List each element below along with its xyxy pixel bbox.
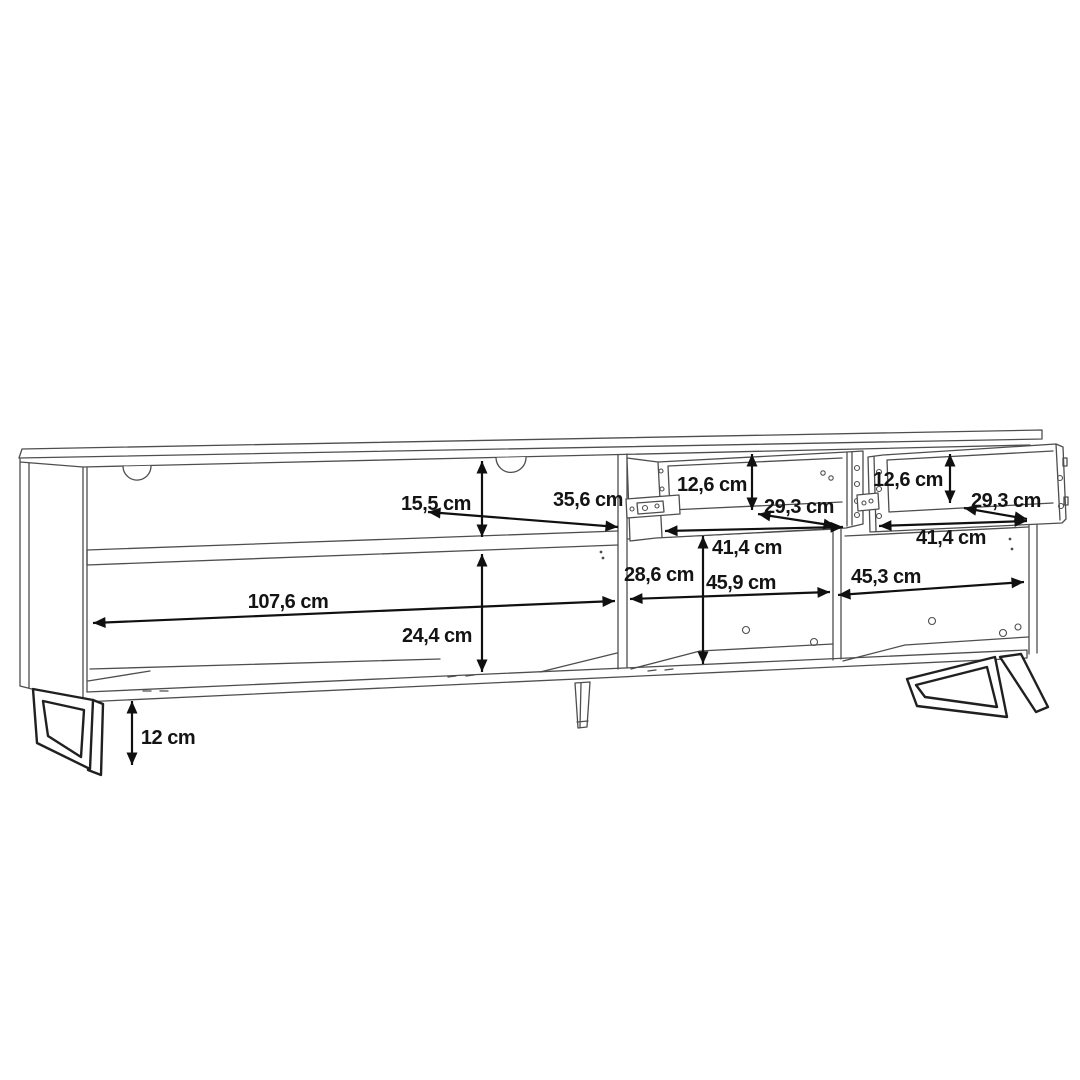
screenshot-canvas: 15,5 cm 35,6 cm 107,6 cm 24,4 cm 12,6 cm… <box>0 0 1080 1080</box>
dim-label-leg-height: 12 cm <box>141 727 195 749</box>
cable-notch-left <box>123 466 151 480</box>
left-shelf <box>87 531 618 565</box>
cable-notch-center <box>496 457 526 472</box>
dim-label-lower-left-height: 24,4 cm <box>402 625 472 647</box>
right-side-panel <box>1029 518 1037 654</box>
dim-label-left-compartment-width: 107,6 cm <box>248 591 329 613</box>
drawer-left-slide-rail <box>626 495 680 518</box>
dim-label-middle-compartment-width: 45,9 cm <box>706 572 776 594</box>
dim-arrow-left-compartment-width <box>93 601 615 623</box>
fitting-dashes <box>143 669 673 691</box>
dim-label-right-compartment-width: 45,3 cm <box>851 566 921 588</box>
divider-1 <box>618 454 627 669</box>
dim-label-left-drawer-height: 12,6 cm <box>677 474 747 496</box>
divider-2 <box>833 527 841 660</box>
right-leg-rear-bar <box>1000 654 1048 712</box>
dim-label-left-drawer-width: 41,4 cm <box>712 537 782 559</box>
dim-label-open-compartment-height: 28,6 cm <box>624 564 694 586</box>
left-side-panel <box>20 459 87 702</box>
floor-left-compartment <box>88 653 617 681</box>
dim-label-right-drawer-height: 12,6 cm <box>873 469 943 491</box>
drawer-slide-bridge <box>857 493 879 511</box>
dim-label-upper-shelf-height: 15,5 cm <box>401 493 471 515</box>
top-panel <box>19 430 1042 458</box>
dim-label-right-drawer-width: 41,4 cm <box>916 527 986 549</box>
furniture-dimension-diagram: 15,5 cm 35,6 cm 107,6 cm 24,4 cm 12,6 cm… <box>0 0 1080 1080</box>
dim-label-shelf-depth: 35,6 cm <box>553 489 623 511</box>
screw-marks <box>600 538 1021 646</box>
dim-label-left-drawer-depth: 29,3 cm <box>764 496 834 518</box>
bottom-panel <box>83 650 1027 702</box>
floor-middle-compartment <box>631 644 833 669</box>
dim-label-right-drawer-depth: 29,3 cm <box>971 490 1041 512</box>
